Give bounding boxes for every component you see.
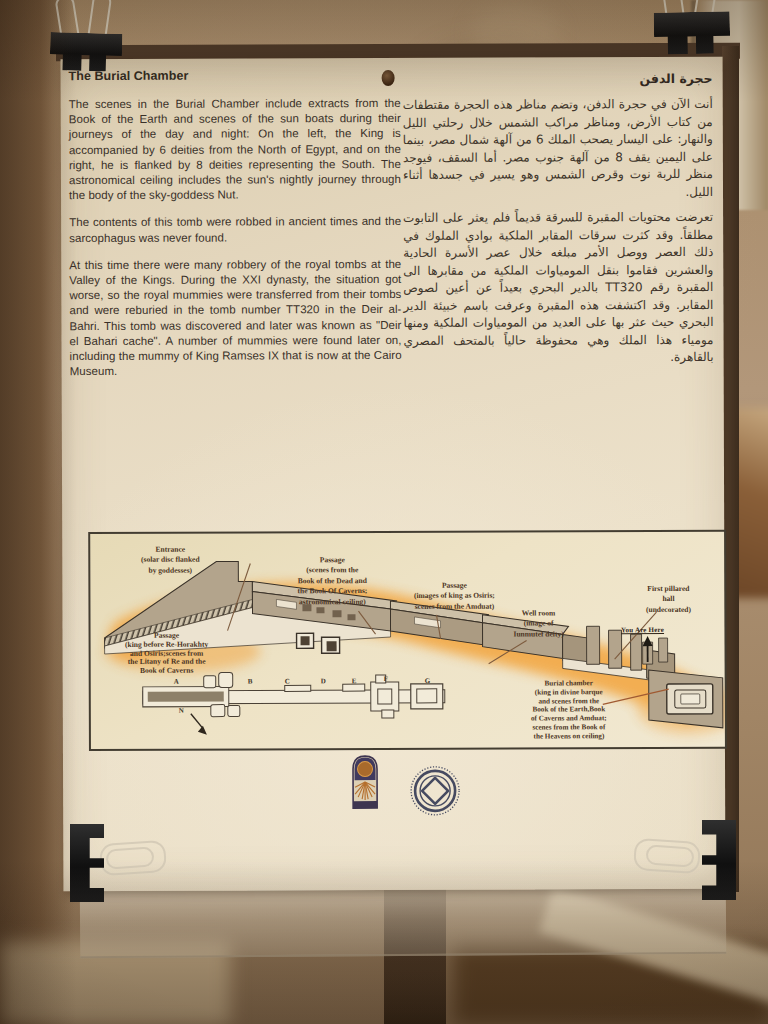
arabic-paragraph: تعرضت محتويات المقبرة للسرقة قديماً فلم … [403, 209, 714, 368]
diagram-label-entrance: Entrance (solar disc flanked by goddesse… [141, 545, 200, 576]
english-paragraph: The contents of this tomb were robbed in… [69, 214, 401, 246]
diagram-label-passage-1: Passage (scenes from the Book of the Dea… [297, 555, 367, 607]
clip-wire [645, 844, 694, 867]
tomb-plan-diagram: A B C D E F G N Entrance (solar disc fla… [88, 530, 727, 751]
tomb-plan-view [143, 672, 445, 719]
diagram-label-well-room: Well room (image of Iunmutef deity) [513, 608, 563, 639]
binder-clip-top-left [44, 0, 128, 96]
arabic-text-column: حجرة الدفن أنت الآن في حجرة الدفن، وتضم … [403, 71, 714, 376]
diagram-label-passage-2: Passage (images of king as Osiris; scene… [414, 581, 495, 613]
clip-wire [105, 846, 154, 869]
sign-paper: The Burial Chamber The scenes in the Bur… [61, 57, 726, 891]
north-arrow [191, 714, 207, 735]
plan-letter: C [285, 677, 290, 685]
english-paragraph: The scenes in the Burial Chamber include… [69, 96, 401, 204]
plan-letter: G [425, 677, 431, 685]
you-are-here-label: You Are Here [621, 626, 664, 634]
sun-arch-emblem-icon [351, 754, 379, 810]
plan-letter: F [384, 675, 388, 683]
plan-letter: E [352, 677, 357, 685]
plan-letter: B [248, 677, 253, 685]
diagram-label-burial-chamber: Burial chamber (king in divine barque an… [531, 679, 607, 741]
diagram-label-pillared-hall: First pillared hall (undecorated) [640, 584, 696, 615]
english-text-column: The Burial Chamber The scenes in the Bur… [69, 68, 402, 392]
antiquities-council-emblem-icon [409, 765, 461, 817]
binder-clip-bottom-right [614, 816, 736, 904]
plan-letter: A [174, 678, 179, 686]
english-paragraph: At this time there were many robbery of … [69, 257, 401, 380]
north-label: N [179, 707, 184, 715]
plan-letter: D [321, 677, 326, 685]
binder-clip-top-right [648, 0, 736, 80]
diagram-label-passage-3: Passage (king before Re-Horakhty and Osi… [125, 632, 208, 676]
binder-clip-bottom-left [66, 820, 182, 908]
arabic-paragraph: أنت الآن في حجرة الدفن، وتضم مناظر هذه ا… [403, 96, 713, 202]
photo-of-tomb-sign: The Burial Chamber The scenes in the Bur… [0, 0, 768, 1024]
